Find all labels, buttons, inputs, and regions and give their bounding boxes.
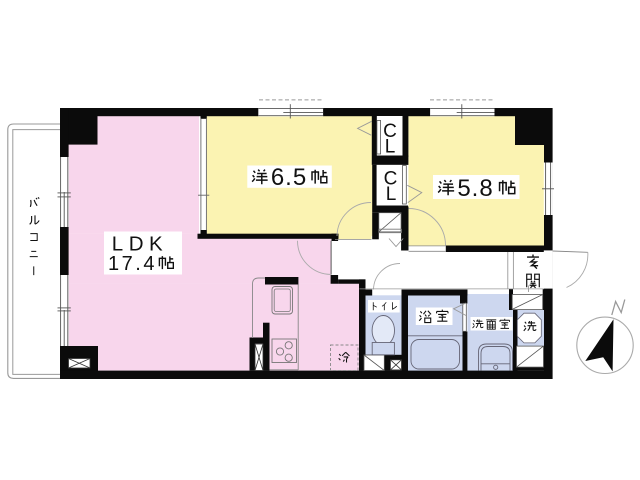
svg-text:L: L: [386, 184, 397, 205]
svg-text:17.4: 17.4: [108, 253, 157, 275]
svg-text:6.5: 6.5: [271, 164, 307, 191]
svg-text:5.8: 5.8: [457, 175, 493, 202]
svg-text:L: L: [385, 137, 396, 158]
